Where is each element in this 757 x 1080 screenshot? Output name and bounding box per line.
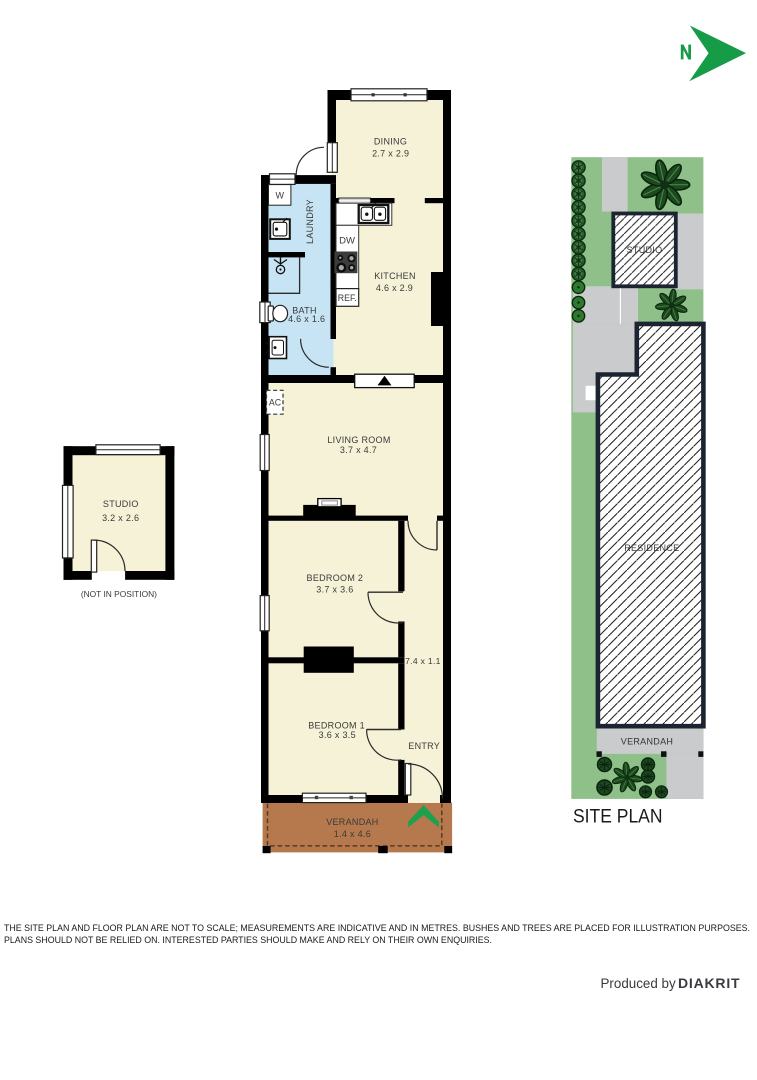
svg-text:(NOT IN POSITION): (NOT IN POSITION) [81,589,157,599]
svg-text:LIVING ROOM: LIVING ROOM [327,435,390,445]
svg-text:3.7 x 3.6: 3.7 x 3.6 [316,585,353,595]
svg-text:THE SITE PLAN AND FLOOR PLAN A: THE SITE PLAN AND FLOOR PLAN ARE NOT TO … [4,923,750,933]
svg-text:VERANDAH: VERANDAH [326,817,378,827]
svg-text:BEDROOM 2: BEDROOM 2 [307,573,364,583]
svg-text:4.6 x 2.9: 4.6 x 2.9 [376,283,413,293]
svg-text:AC: AC [269,397,282,407]
svg-text:BEDROOM 1: BEDROOM 1 [308,721,365,731]
svg-text:REF.: REF. [338,293,357,303]
svg-text:2.7 x 2.9: 2.7 x 2.9 [372,149,409,159]
svg-text:RESIDENCE: RESIDENCE [624,543,679,553]
svg-text:DW: DW [339,236,355,247]
svg-text:DIAKRIT: DIAKRIT [678,975,740,991]
svg-text:KITCHEN: KITCHEN [374,271,416,281]
svg-text:DINING: DINING [374,137,407,147]
svg-text:3.7 x 4.7: 3.7 x 4.7 [340,445,377,455]
svg-text:VERANDAH: VERANDAH [621,737,673,747]
svg-text:3.6 x 3.5: 3.6 x 3.5 [319,730,356,740]
svg-text:STUDIO: STUDIO [103,499,139,509]
svg-text:3.2 x 2.6: 3.2 x 2.6 [102,513,139,523]
svg-text:ENTRY: ENTRY [408,741,440,751]
svg-text:LAUNDRY: LAUNDRY [305,199,315,244]
svg-text:1.4 x 4.6: 1.4 x 4.6 [334,829,371,839]
svg-text:W: W [275,191,284,201]
svg-text:STUDIO: STUDIO [627,245,663,255]
svg-text:7.4 x 1.1: 7.4 x 1.1 [405,656,441,666]
svg-text:SITE PLAN: SITE PLAN [573,805,663,827]
svg-text:4.6 x 1.6: 4.6 x 1.6 [288,314,325,324]
svg-text:Produced by: Produced by [601,976,676,991]
svg-text:PLANS SHOULD NOT BE RELIED ON.: PLANS SHOULD NOT BE RELIED ON. INTERESTE… [4,935,492,945]
